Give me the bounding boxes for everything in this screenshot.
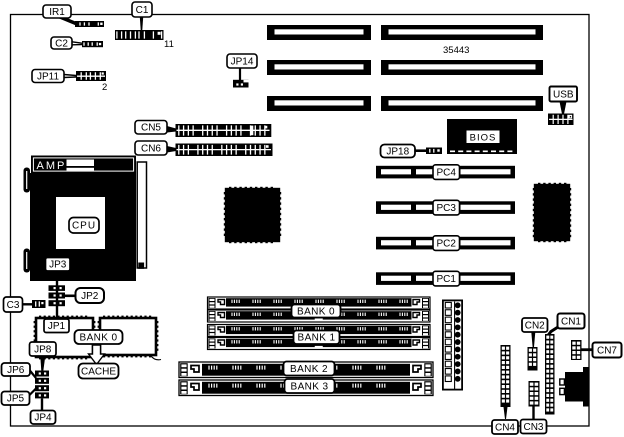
svg-text:JP14: JP14 (231, 56, 254, 67)
svg-text:PC3: PC3 (436, 203, 456, 214)
svg-text:2: 2 (102, 82, 107, 93)
svg-text:CN5: CN5 (141, 123, 161, 134)
svg-text:C3: C3 (7, 300, 20, 311)
svg-text:USB: USB (553, 89, 574, 100)
svg-text:PC4: PC4 (436, 168, 456, 179)
svg-text:CN4: CN4 (495, 422, 515, 433)
svg-text:PC1: PC1 (436, 274, 456, 285)
svg-text:CN2: CN2 (525, 320, 545, 331)
svg-text:JP4: JP4 (34, 413, 52, 424)
svg-text:C2: C2 (55, 38, 68, 49)
svg-text:JP11: JP11 (37, 71, 59, 82)
svg-text:BANK 0: BANK 0 (80, 332, 118, 343)
svg-text:IR1: IR1 (49, 7, 65, 18)
svg-text:11: 11 (164, 39, 174, 50)
svg-text:BIOS: BIOS (470, 133, 497, 144)
svg-text:CN3: CN3 (523, 422, 543, 433)
svg-text:C1: C1 (136, 5, 149, 16)
svg-text:35443: 35443 (443, 45, 469, 56)
svg-text:AMP: AMP (37, 160, 67, 172)
svg-text:JP2: JP2 (81, 291, 99, 302)
svg-text:JP1: JP1 (48, 321, 66, 332)
svg-text:JP3: JP3 (49, 260, 67, 271)
svg-text:CPU: CPU (72, 221, 96, 232)
svg-text:BANK 3: BANK 3 (291, 381, 329, 392)
svg-text:JP5: JP5 (7, 394, 25, 405)
svg-text:CN1: CN1 (561, 316, 581, 327)
svg-text:JP18: JP18 (386, 146, 409, 157)
svg-text:PC2: PC2 (436, 239, 456, 250)
svg-text:JP6: JP6 (7, 365, 25, 376)
svg-text:BANK 1: BANK 1 (298, 333, 336, 344)
svg-text:BANK 2: BANK 2 (290, 364, 328, 375)
svg-text:BANK 0: BANK 0 (297, 306, 335, 317)
svg-text:JP8: JP8 (34, 344, 52, 355)
svg-text:CACHE: CACHE (81, 366, 116, 377)
svg-text:CN6: CN6 (141, 143, 161, 154)
svg-text:CN7: CN7 (597, 345, 617, 356)
